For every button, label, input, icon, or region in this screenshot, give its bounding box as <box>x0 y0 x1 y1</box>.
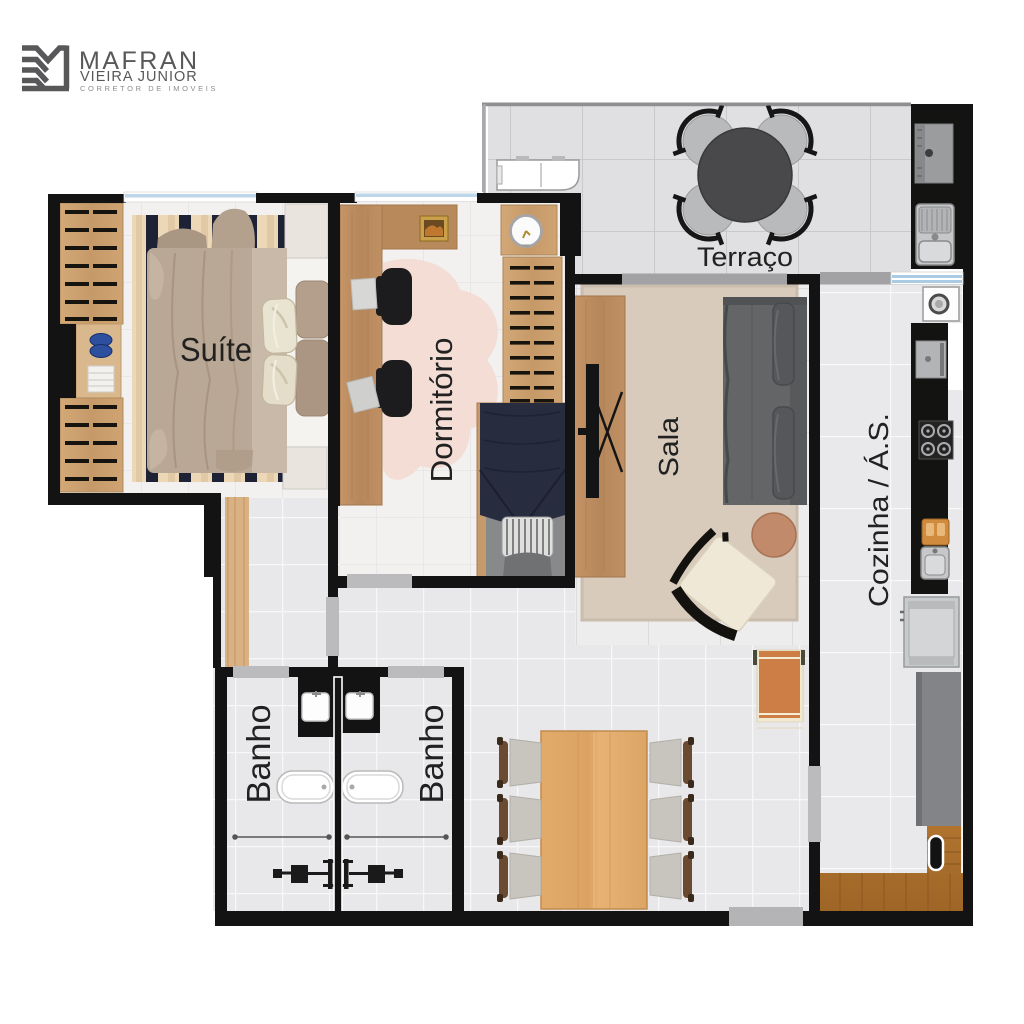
svg-text:Terraço: Terraço <box>697 242 793 272</box>
svg-text:Cozinha / Á.S.: Cozinha / Á.S. <box>863 413 894 607</box>
svg-text:VIEIRA JUNIOR: VIEIRA JUNIOR <box>80 69 198 85</box>
svg-text:Banho: Banho <box>240 705 277 804</box>
svg-text:CORRETOR DE IMOVEIS: CORRETOR DE IMOVEIS <box>80 84 218 93</box>
svg-text:Dormitório: Dormitório <box>424 338 459 483</box>
svg-text:Sala: Sala <box>653 417 684 477</box>
svg-text:Suíte: Suíte <box>180 331 252 368</box>
svg-text:Banho: Banho <box>413 705 450 804</box>
